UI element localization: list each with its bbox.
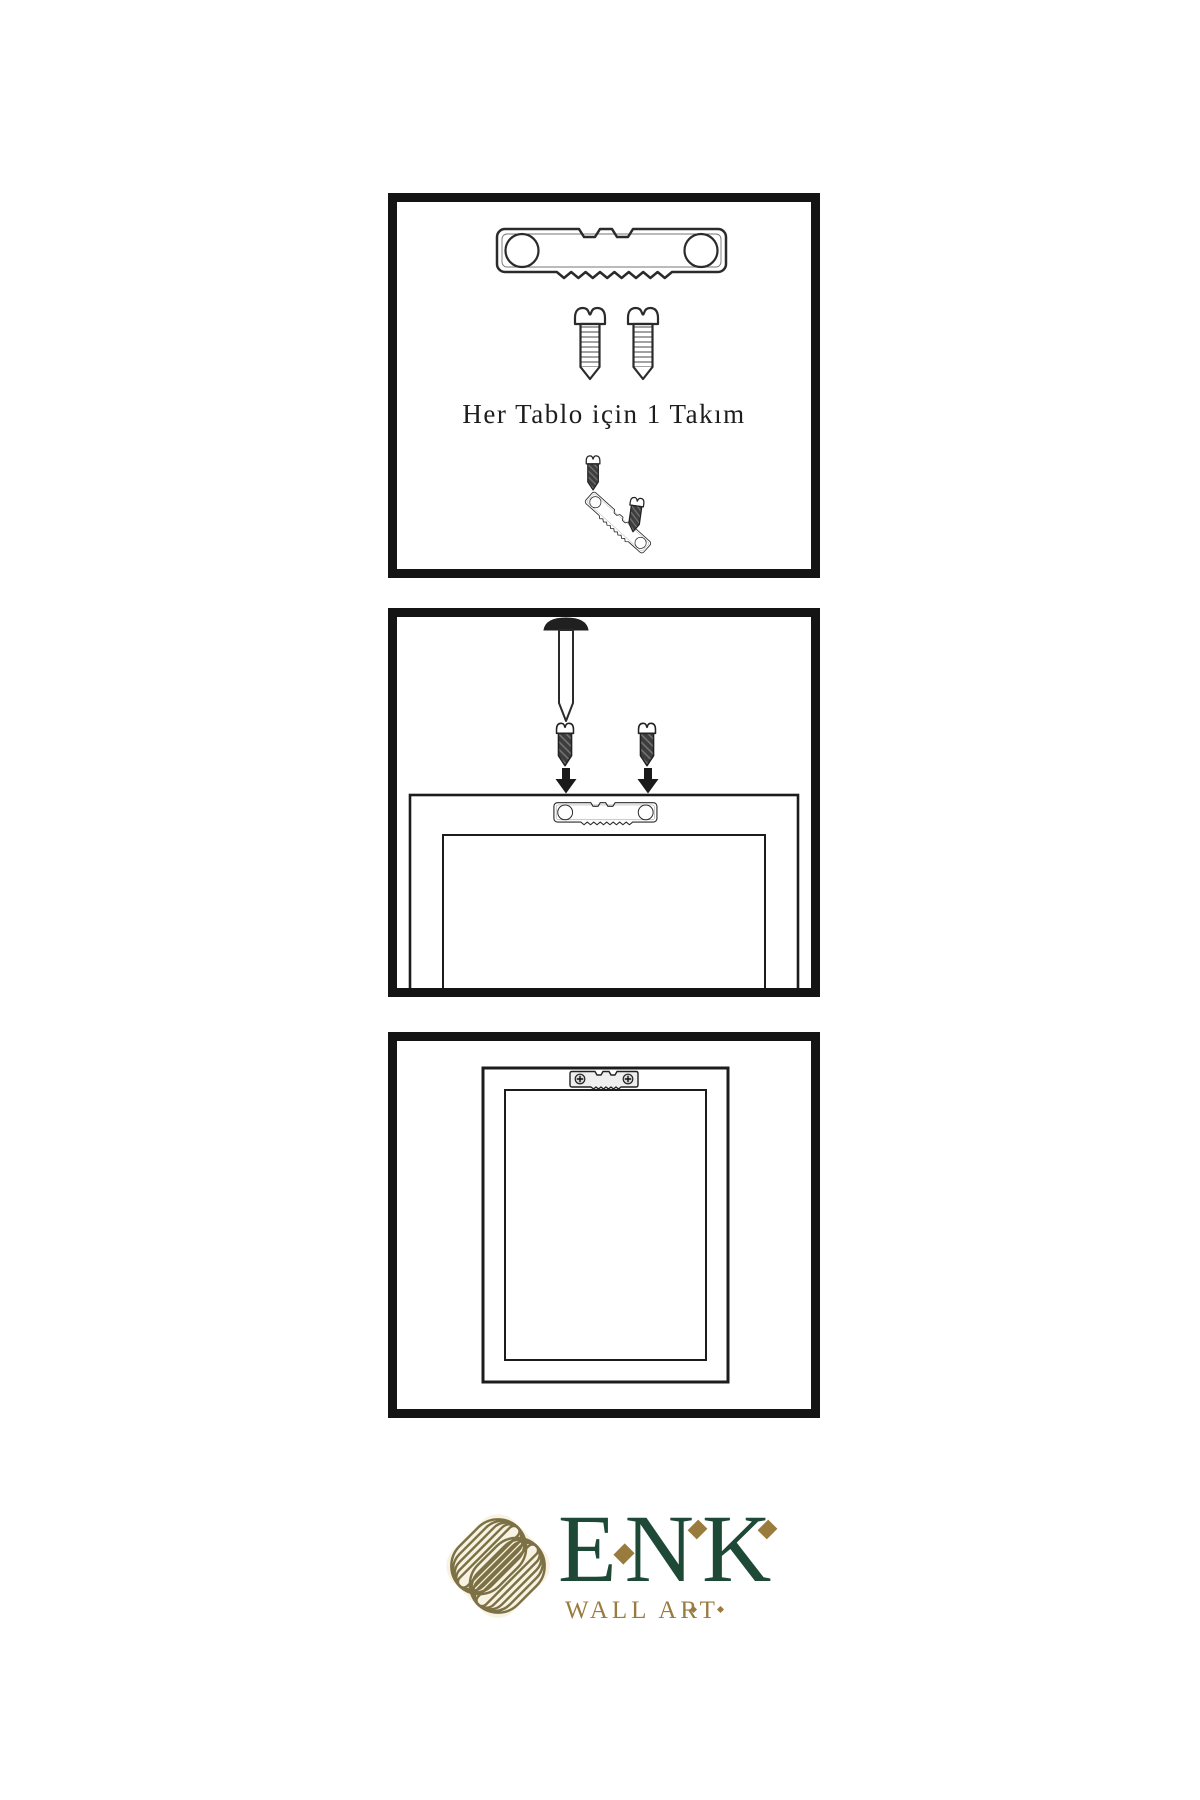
brand-wordmark: ENK — [558, 1501, 768, 1601]
brand-text: ENK — [558, 1495, 779, 1602]
step1-caption: Her Tablo için 1 Takım — [397, 399, 811, 430]
screw-icon — [586, 456, 600, 490]
sawtooth-hanger-icon — [497, 229, 726, 278]
step2-panel — [388, 608, 820, 997]
nail-icon — [544, 618, 588, 721]
interlaced-knot-icon — [438, 1502, 558, 1630]
step3-illustration — [397, 1041, 811, 1409]
hung-frame-icon — [483, 1068, 728, 1382]
screw-icon — [575, 308, 605, 379]
sawtooth-hanger-icon — [570, 1072, 638, 1090]
step3-panel — [388, 1032, 820, 1418]
step1-illustration — [397, 202, 811, 569]
down-arrow-icon — [638, 768, 659, 794]
screw-icon — [628, 308, 658, 379]
step1-panel: Her Tablo için 1 Takım — [388, 193, 820, 578]
step2-illustration — [397, 617, 811, 988]
screw-icon — [639, 723, 656, 765]
down-arrow-icon — [556, 768, 577, 794]
screw-icon — [557, 723, 574, 765]
brand-subtitle: WALL ART — [565, 1597, 735, 1623]
sawtooth-hanger-icon — [554, 803, 657, 825]
